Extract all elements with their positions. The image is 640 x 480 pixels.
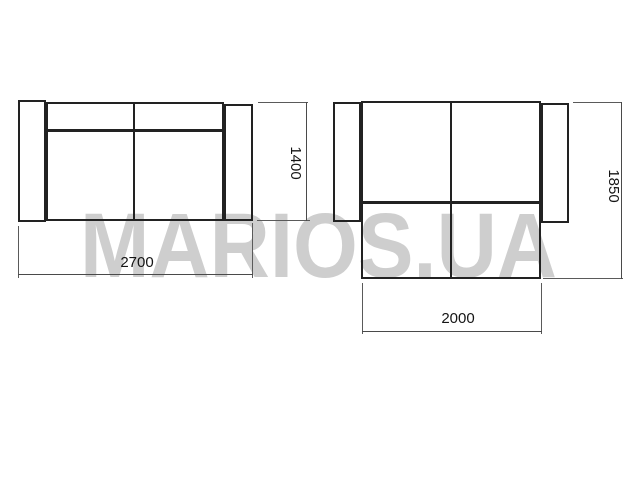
- dimension-2700-label: 2700: [107, 254, 167, 272]
- drawing-layer: 2700 1400 2000: [0, 0, 640, 480]
- corner-sofa-left-armrest: [333, 102, 361, 222]
- dimension-1850-extension-bottom: [543, 278, 623, 279]
- straight-sofa-center-divider-line: [133, 102, 135, 221]
- straight-sofa-body: [46, 102, 224, 221]
- dimension-2000-extension-right: [541, 283, 542, 334]
- dimension-1400-label: 1400: [286, 133, 304, 193]
- dimension-2000-extension-left: [362, 283, 363, 334]
- dimension-2700-extension-left: [18, 226, 19, 278]
- straight-sofa-right-armrest: [224, 104, 253, 221]
- dimension-1400-line: [306, 102, 307, 221]
- dimension-1850-label: 1850: [604, 156, 622, 216]
- dimension-2700-line: [18, 274, 253, 275]
- dimension-2700-extension-right: [252, 223, 253, 278]
- corner-sofa-right-armrest: [541, 103, 569, 223]
- corner-sofa-center-divider-line: [450, 101, 452, 279]
- dimension-1850-extension-top: [573, 102, 622, 103]
- dimension-2000-line: [362, 331, 542, 332]
- furniture-dimension-drawing: MARIOS.UA 2700 1400: [0, 0, 640, 480]
- dimension-1400-extension-top: [258, 102, 308, 103]
- dimension-1400-extension-bottom: [257, 220, 310, 221]
- dimension-2000-label: 2000: [428, 310, 488, 328]
- straight-sofa-backrest-edge-line: [47, 129, 223, 132]
- straight-sofa-left-armrest: [18, 100, 46, 222]
